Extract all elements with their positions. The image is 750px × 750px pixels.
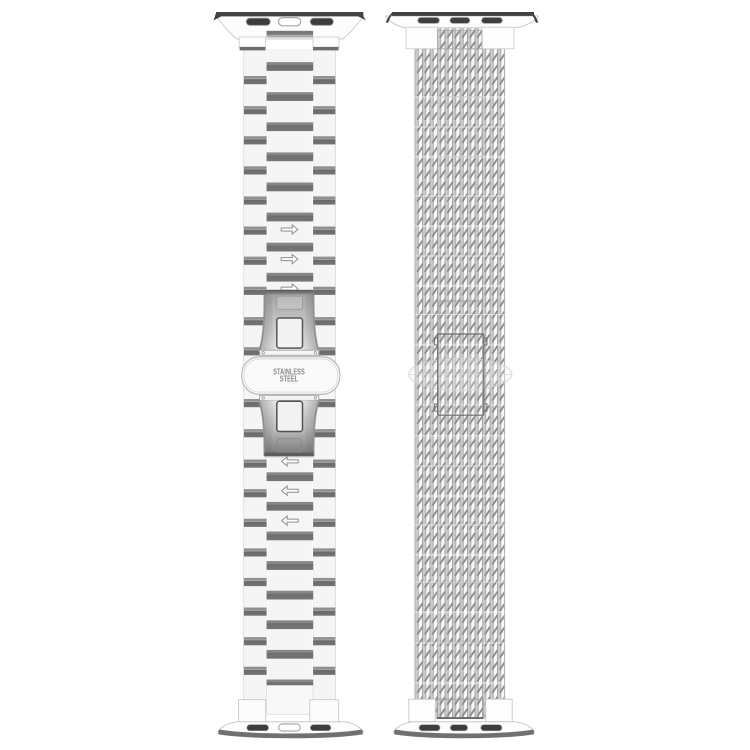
svg-text:STEEL: STEEL: [280, 375, 299, 384]
